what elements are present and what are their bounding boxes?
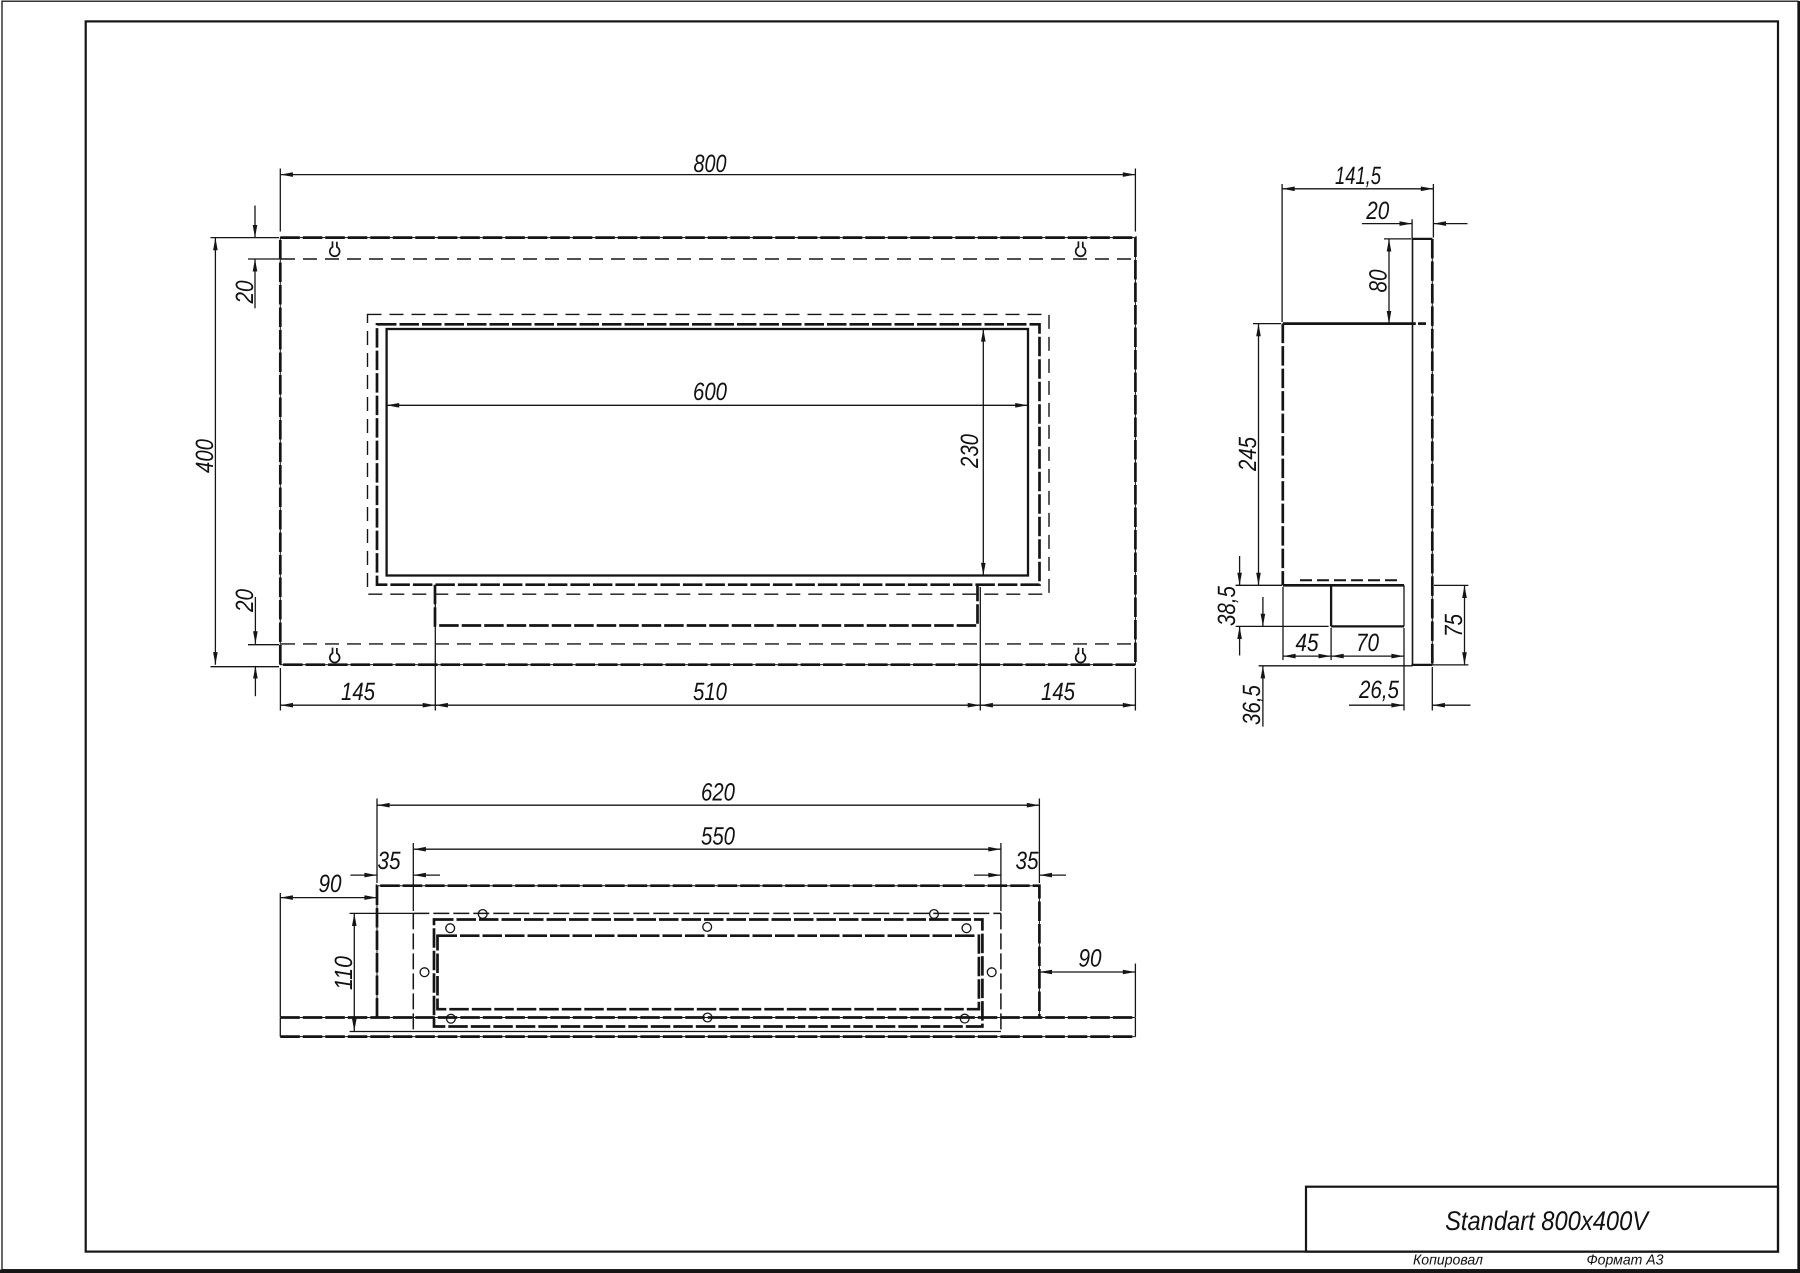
svg-text:Формат А3: Формат А3 bbox=[1587, 1253, 1664, 1269]
svg-text:620: 620 bbox=[701, 779, 735, 807]
svg-text:145: 145 bbox=[1041, 678, 1075, 706]
svg-text:90: 90 bbox=[319, 870, 342, 898]
svg-text:110: 110 bbox=[330, 956, 358, 990]
svg-text:245: 245 bbox=[1234, 437, 1262, 472]
svg-text:145: 145 bbox=[341, 678, 375, 706]
svg-text:Копировал: Копировал bbox=[1413, 1253, 1483, 1269]
svg-text:80: 80 bbox=[1365, 269, 1393, 292]
svg-text:20: 20 bbox=[231, 280, 259, 304]
svg-text:75: 75 bbox=[1440, 614, 1468, 637]
svg-text:400: 400 bbox=[191, 439, 219, 473]
svg-text:Standart 800x400V: Standart 800x400V bbox=[1445, 1206, 1651, 1236]
svg-text:70: 70 bbox=[1356, 629, 1379, 657]
svg-text:141,5: 141,5 bbox=[1335, 162, 1381, 190]
svg-text:35: 35 bbox=[1016, 847, 1039, 875]
svg-text:45: 45 bbox=[1296, 629, 1319, 657]
svg-text:600: 600 bbox=[693, 378, 727, 406]
svg-text:35: 35 bbox=[378, 847, 401, 875]
svg-text:36,5: 36,5 bbox=[1238, 685, 1266, 725]
svg-text:20: 20 bbox=[231, 589, 259, 613]
svg-text:20: 20 bbox=[1365, 197, 1389, 225]
svg-text:90: 90 bbox=[1079, 945, 1102, 973]
svg-text:510: 510 bbox=[693, 678, 727, 706]
svg-text:38,5: 38,5 bbox=[1213, 586, 1241, 626]
svg-text:800: 800 bbox=[694, 150, 727, 178]
svg-text:550: 550 bbox=[701, 823, 735, 851]
svg-text:26,5: 26,5 bbox=[1358, 676, 1399, 704]
svg-text:230: 230 bbox=[956, 434, 984, 469]
